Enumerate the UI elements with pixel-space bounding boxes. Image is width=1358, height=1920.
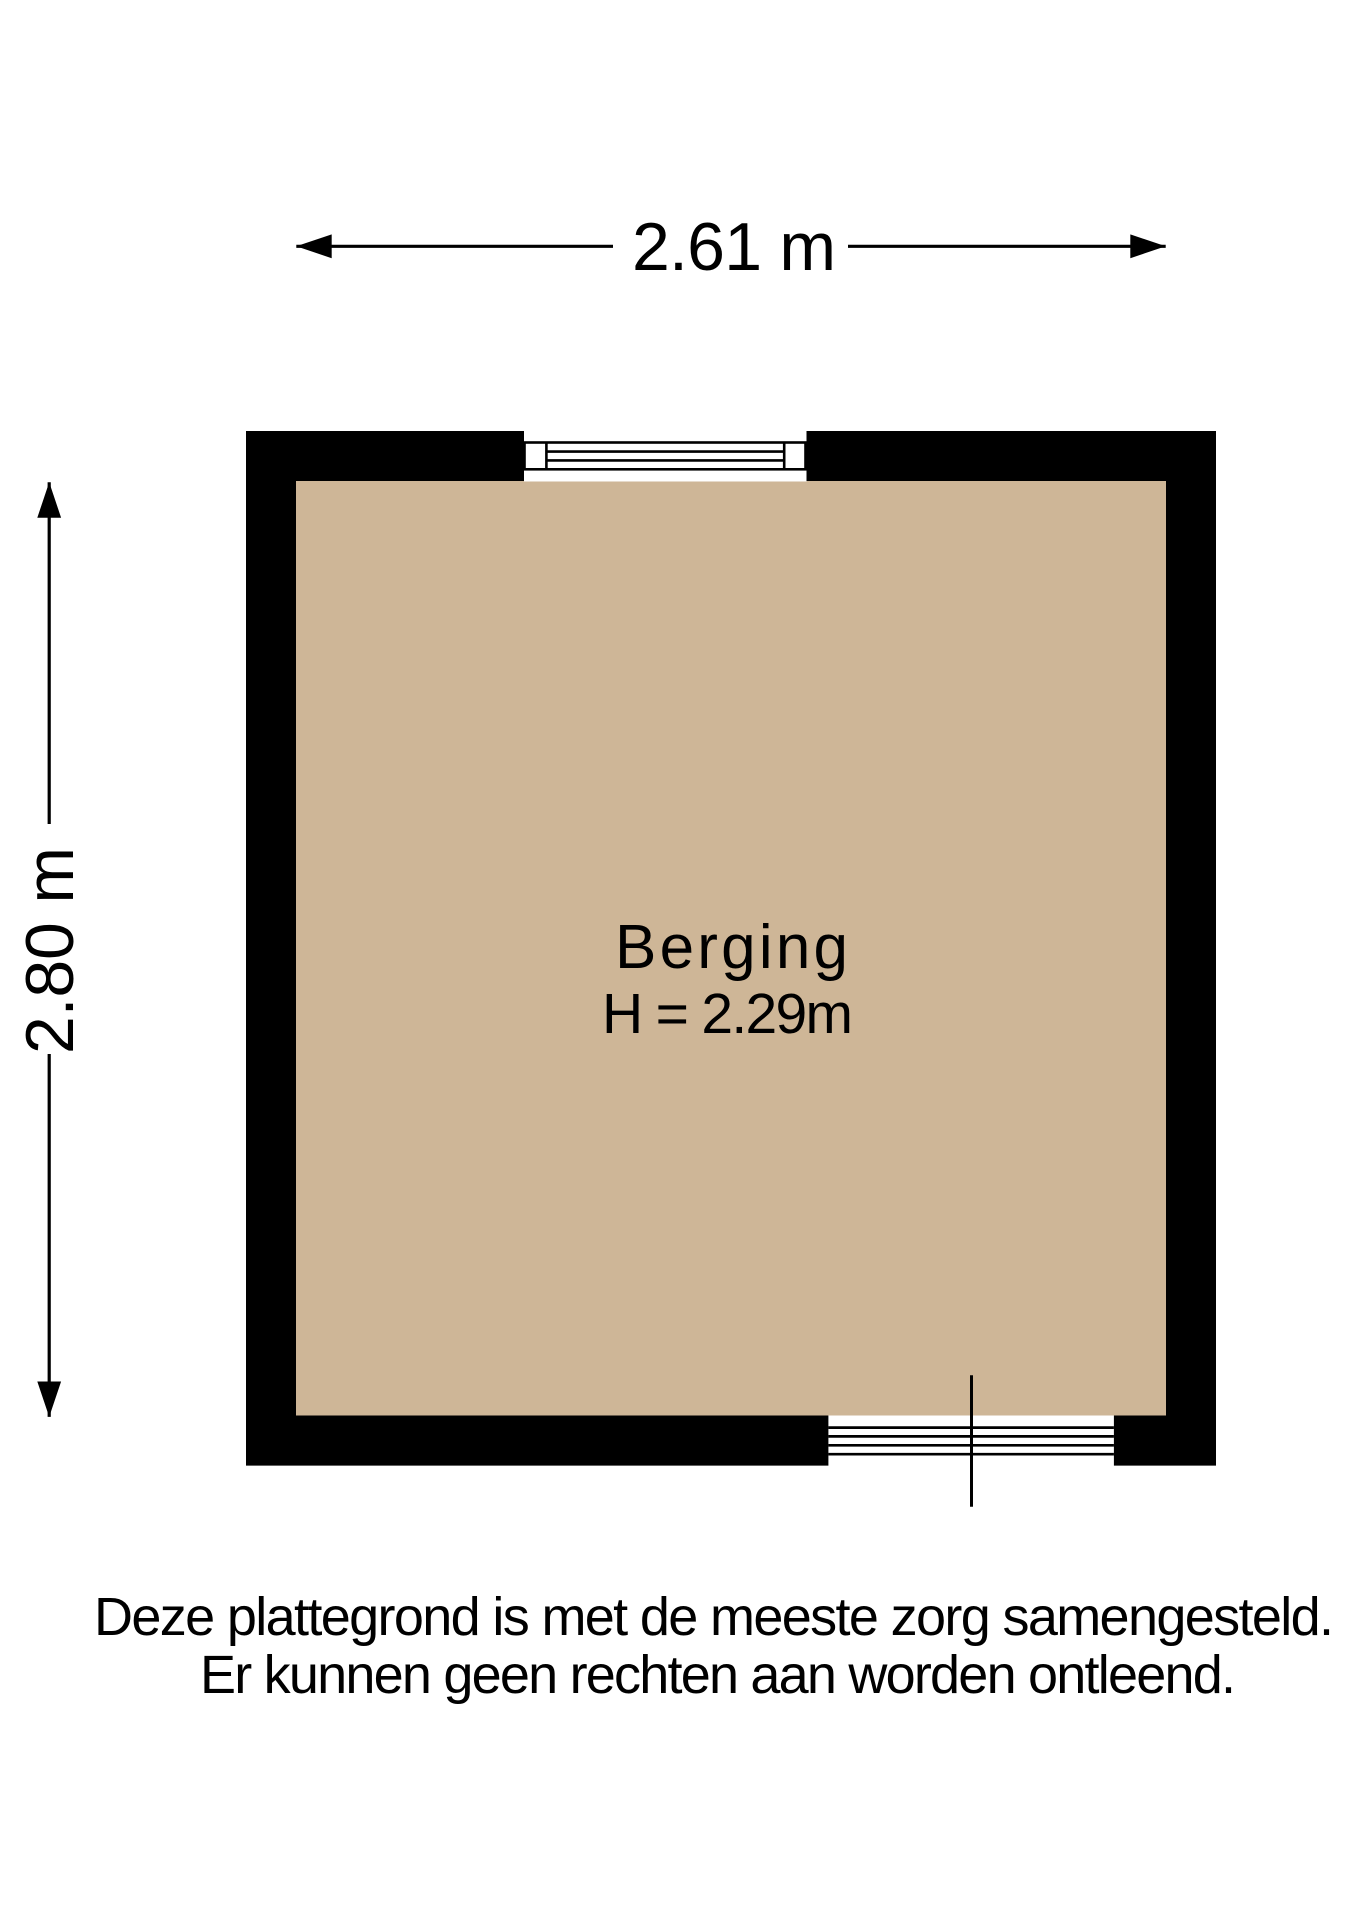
svg-text:H = 2.29m: H = 2.29m xyxy=(602,982,853,1046)
svg-text:2.61 m: 2.61 m xyxy=(632,209,836,285)
svg-text:2.80 m: 2.80 m xyxy=(12,847,88,1054)
svg-text:Er kunnen geen rechten aan wor: Er kunnen geen rechten aan worden ontlee… xyxy=(200,1645,1236,1705)
svg-text:Berging: Berging xyxy=(615,913,848,982)
svg-text:Deze plattegrond is met de mee: Deze plattegrond is met de meeste zorg s… xyxy=(94,1587,1334,1647)
